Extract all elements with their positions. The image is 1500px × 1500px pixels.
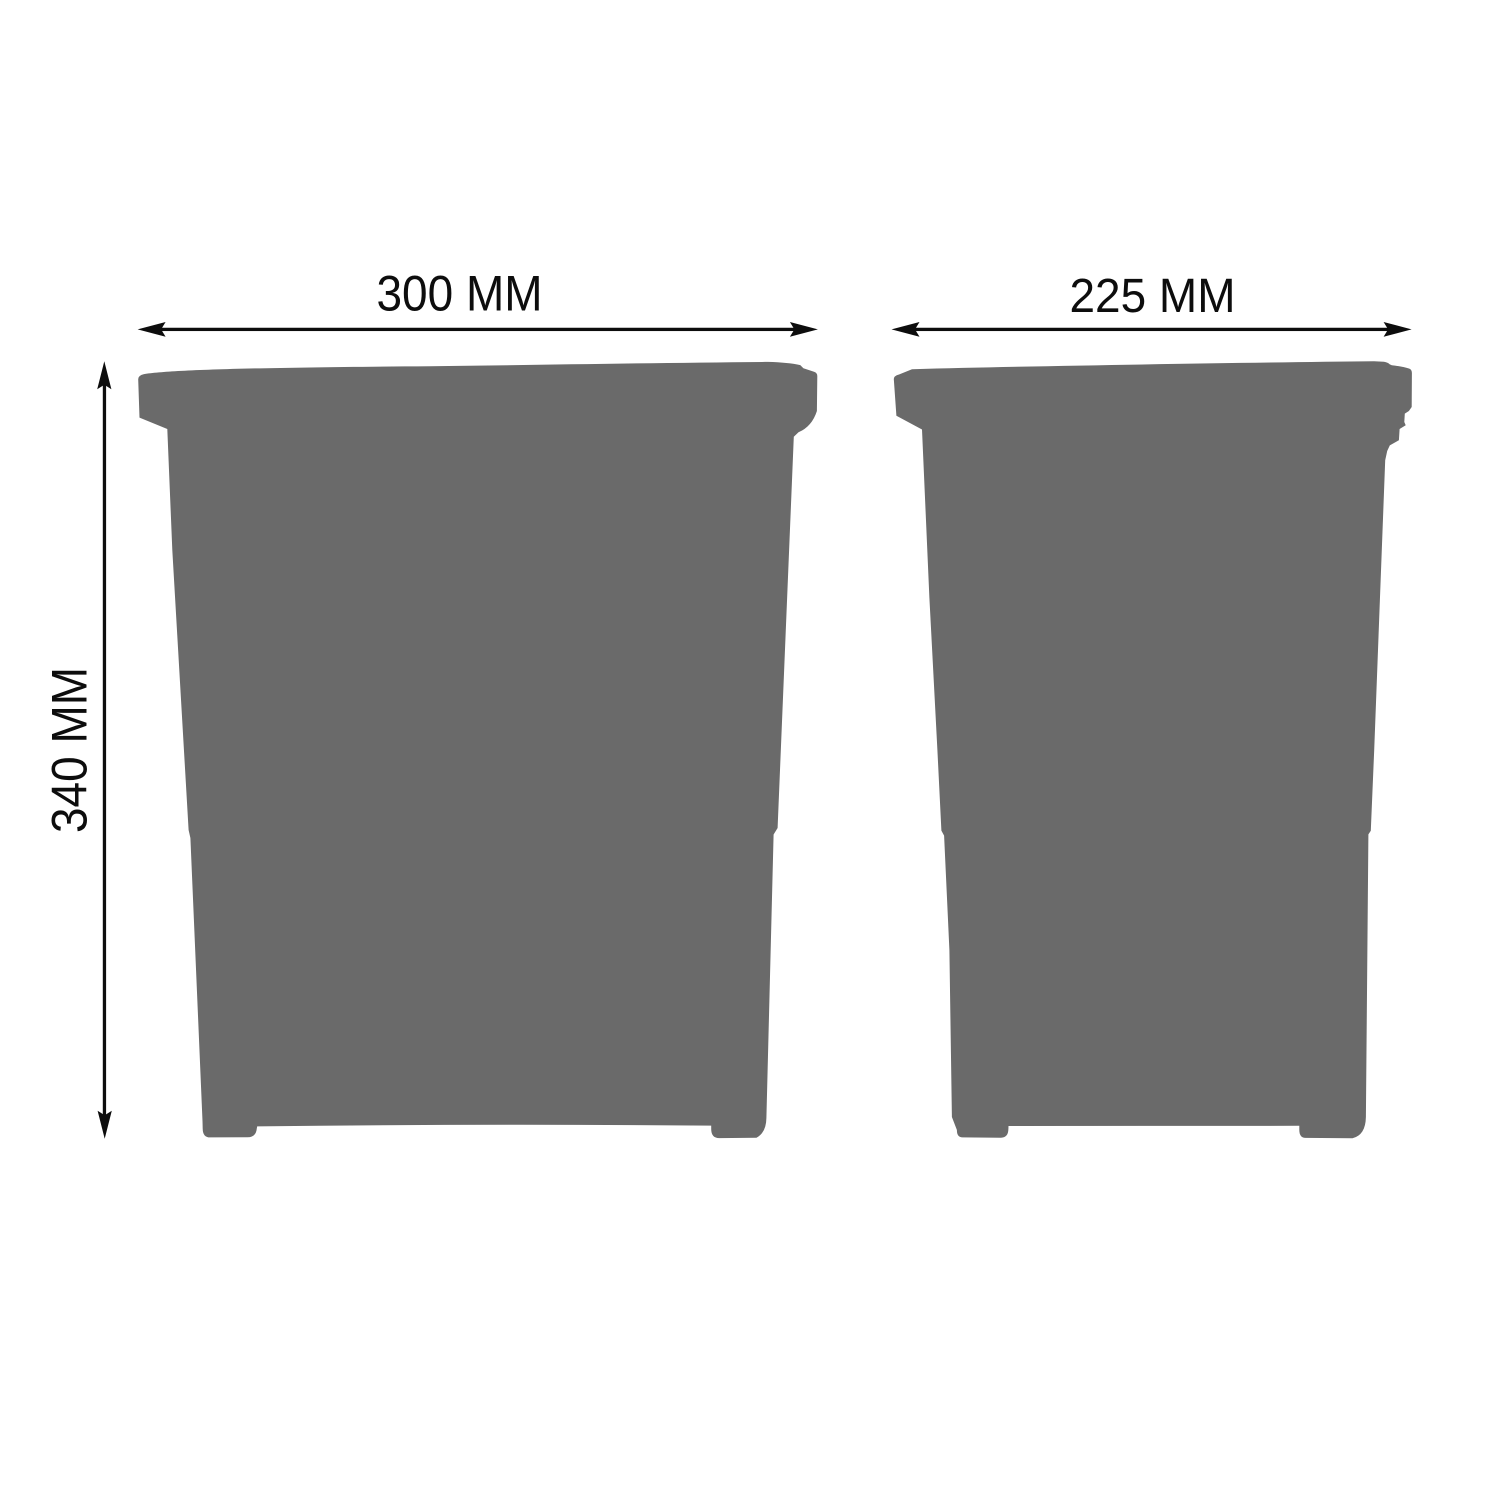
svg-text:300 MM: 300 MM [377, 265, 543, 322]
svg-text:225 MM: 225 MM [1070, 269, 1236, 323]
svg-text:340 MM: 340 MM [41, 667, 98, 833]
